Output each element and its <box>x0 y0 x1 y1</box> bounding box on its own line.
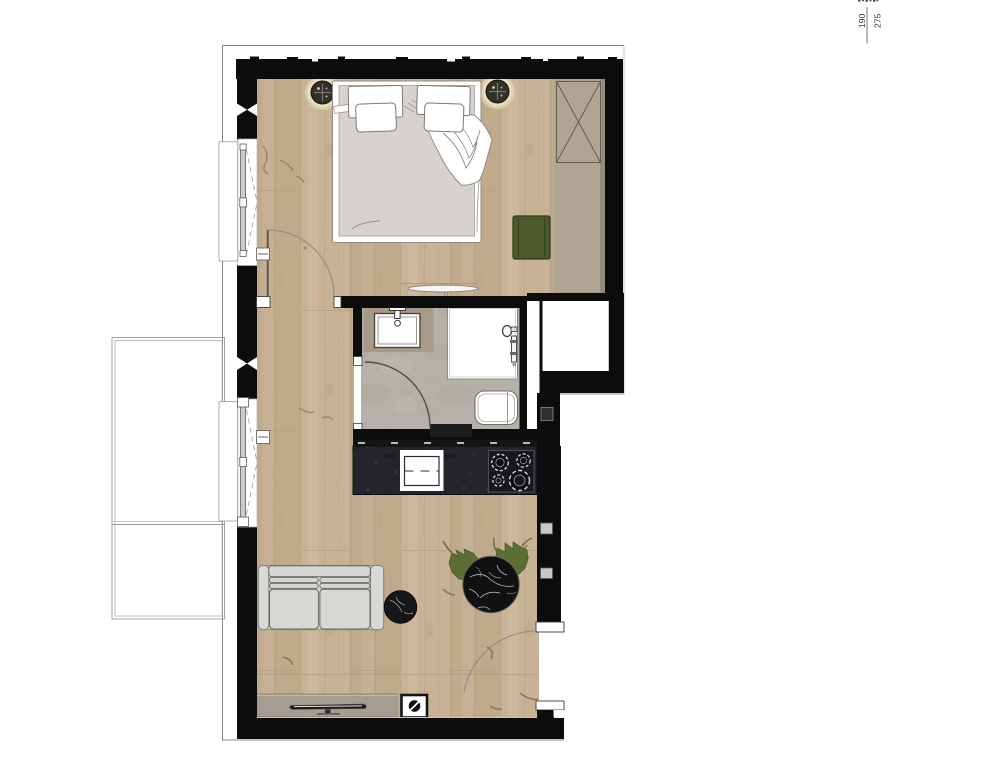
svg-text:190: 190 <box>857 13 867 28</box>
svg-text:275: 275 <box>872 13 882 28</box>
